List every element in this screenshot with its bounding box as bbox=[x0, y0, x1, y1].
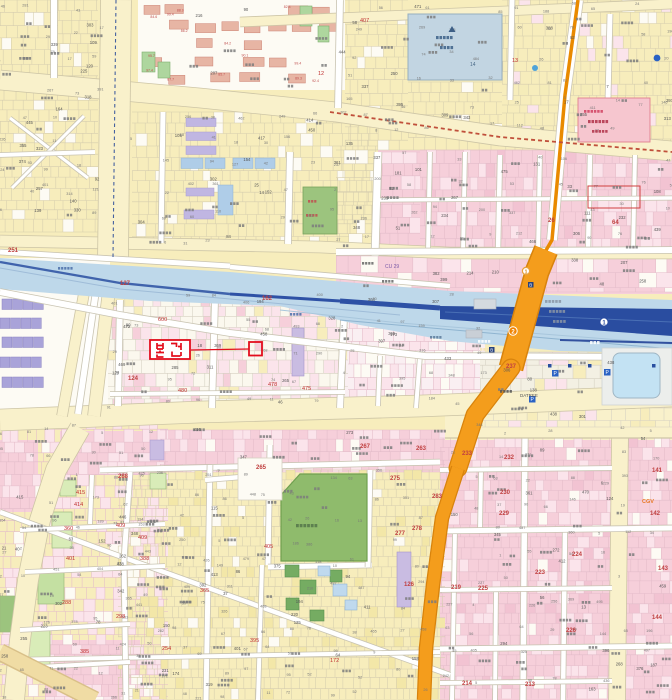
svg-text:86: 86 bbox=[223, 497, 227, 501]
svg-text:233: 233 bbox=[462, 451, 473, 457]
svg-text:81: 81 bbox=[548, 81, 552, 85]
svg-text:462: 462 bbox=[514, 81, 520, 85]
svg-text:38: 38 bbox=[352, 630, 356, 634]
svg-text:89: 89 bbox=[225, 671, 229, 675]
svg-text:92: 92 bbox=[389, 186, 394, 191]
svg-text:49: 49 bbox=[247, 397, 251, 401]
svg-text:323: 323 bbox=[36, 146, 44, 151]
svg-text:13: 13 bbox=[512, 58, 518, 64]
svg-text:369: 369 bbox=[568, 597, 574, 601]
svg-text:265: 265 bbox=[282, 378, 290, 383]
svg-text:22: 22 bbox=[74, 666, 78, 670]
svg-text:237: 237 bbox=[334, 163, 340, 167]
svg-text:27: 27 bbox=[336, 238, 340, 242]
svg-text:86: 86 bbox=[236, 569, 241, 574]
svg-text:187: 187 bbox=[650, 663, 658, 668]
svg-text:86.2: 86.2 bbox=[181, 29, 188, 33]
svg-text:69: 69 bbox=[197, 652, 201, 656]
svg-text:392: 392 bbox=[199, 583, 207, 588]
svg-text:172: 172 bbox=[330, 658, 339, 664]
svg-text:34: 34 bbox=[650, 531, 654, 535]
svg-text:24: 24 bbox=[115, 371, 119, 375]
svg-text:73: 73 bbox=[470, 105, 474, 109]
svg-text:69: 69 bbox=[162, 217, 166, 221]
svg-text:200: 200 bbox=[479, 208, 485, 212]
svg-text:83: 83 bbox=[622, 450, 626, 454]
svg-text:361: 361 bbox=[526, 491, 534, 496]
svg-text:154: 154 bbox=[243, 157, 251, 162]
svg-text:256: 256 bbox=[551, 600, 557, 604]
svg-text:282: 282 bbox=[158, 629, 164, 633]
svg-text:399: 399 bbox=[440, 277, 448, 282]
svg-text:41: 41 bbox=[377, 319, 381, 323]
svg-text:4: 4 bbox=[343, 371, 345, 375]
svg-text:92: 92 bbox=[117, 562, 121, 566]
svg-text:30: 30 bbox=[264, 141, 268, 145]
svg-text:303: 303 bbox=[87, 23, 95, 28]
svg-text:414: 414 bbox=[306, 118, 314, 123]
svg-text:95.7: 95.7 bbox=[148, 54, 155, 58]
svg-text:207: 207 bbox=[621, 260, 629, 265]
svg-text:404: 404 bbox=[97, 567, 103, 571]
svg-text:3: 3 bbox=[564, 96, 566, 100]
svg-text:50: 50 bbox=[147, 642, 151, 646]
svg-text:262: 262 bbox=[119, 554, 127, 559]
svg-text:98: 98 bbox=[220, 695, 224, 699]
svg-text:459: 459 bbox=[659, 584, 667, 589]
svg-text:347: 347 bbox=[240, 455, 248, 460]
svg-text:29: 29 bbox=[113, 350, 117, 354]
svg-text:49: 49 bbox=[477, 351, 481, 355]
svg-text:360: 360 bbox=[64, 526, 73, 532]
svg-text:451: 451 bbox=[53, 568, 59, 572]
svg-text:12: 12 bbox=[149, 430, 153, 434]
svg-text:96: 96 bbox=[52, 518, 56, 522]
svg-text:37: 37 bbox=[183, 646, 187, 650]
svg-text:302: 302 bbox=[210, 176, 218, 181]
svg-text:93: 93 bbox=[28, 161, 32, 165]
svg-text:21: 21 bbox=[451, 451, 455, 455]
svg-text:14: 14 bbox=[44, 427, 48, 431]
svg-text:445: 445 bbox=[26, 120, 34, 125]
svg-text:16: 16 bbox=[417, 76, 421, 80]
svg-text:50: 50 bbox=[504, 576, 508, 580]
svg-text:80: 80 bbox=[166, 399, 170, 403]
svg-text:59: 59 bbox=[186, 294, 190, 298]
svg-text:330: 330 bbox=[74, 208, 82, 213]
svg-text:47: 47 bbox=[262, 557, 266, 561]
svg-text:87: 87 bbox=[419, 516, 423, 520]
svg-text:11: 11 bbox=[267, 691, 271, 695]
svg-text:95: 95 bbox=[287, 673, 291, 677]
svg-text:401: 401 bbox=[234, 646, 242, 651]
svg-text:263: 263 bbox=[416, 446, 427, 452]
svg-text:318: 318 bbox=[85, 95, 93, 100]
svg-text:251: 251 bbox=[8, 248, 19, 254]
svg-text:153: 153 bbox=[138, 522, 144, 526]
svg-text:139: 139 bbox=[34, 208, 42, 213]
svg-text:196: 196 bbox=[646, 629, 652, 633]
svg-text:393: 393 bbox=[622, 474, 628, 478]
svg-text:4: 4 bbox=[472, 603, 474, 607]
svg-text:293: 293 bbox=[307, 214, 313, 218]
svg-text:425: 425 bbox=[139, 472, 145, 476]
svg-text:88: 88 bbox=[44, 687, 48, 691]
svg-text:134: 134 bbox=[331, 476, 337, 480]
svg-text:288: 288 bbox=[118, 474, 129, 480]
svg-text:306: 306 bbox=[573, 231, 581, 236]
svg-text:26: 26 bbox=[305, 516, 309, 520]
svg-text:354: 354 bbox=[0, 519, 6, 523]
svg-text:DATREE: DATREE bbox=[520, 393, 538, 398]
svg-text:112: 112 bbox=[517, 124, 523, 128]
svg-text:385: 385 bbox=[80, 649, 89, 655]
svg-text:B: B bbox=[529, 283, 532, 288]
svg-text:10: 10 bbox=[666, 207, 670, 211]
svg-text:89: 89 bbox=[92, 211, 96, 215]
svg-text:273: 273 bbox=[346, 430, 354, 435]
svg-text:600: 600 bbox=[158, 317, 167, 323]
svg-text:46: 46 bbox=[0, 432, 2, 436]
svg-text:135: 135 bbox=[346, 141, 354, 146]
svg-text:59: 59 bbox=[92, 54, 96, 58]
svg-text:450: 450 bbox=[308, 128, 316, 133]
svg-text:269: 269 bbox=[419, 25, 425, 29]
svg-text:5: 5 bbox=[650, 429, 652, 433]
svg-text:21: 21 bbox=[460, 236, 464, 240]
svg-text:397: 397 bbox=[378, 339, 386, 344]
svg-text:213: 213 bbox=[525, 682, 536, 688]
svg-text:275: 275 bbox=[390, 476, 401, 482]
svg-text:87: 87 bbox=[364, 113, 368, 117]
svg-text:45: 45 bbox=[452, 649, 456, 653]
svg-text:35: 35 bbox=[136, 654, 140, 658]
svg-text:12: 12 bbox=[99, 671, 103, 675]
svg-text:475: 475 bbox=[501, 169, 509, 174]
svg-text:182: 182 bbox=[0, 668, 2, 672]
svg-text:54: 54 bbox=[22, 526, 26, 530]
svg-text:487: 487 bbox=[358, 586, 364, 590]
svg-text:158: 158 bbox=[412, 656, 420, 661]
svg-text:5: 5 bbox=[476, 475, 478, 479]
svg-text:77: 77 bbox=[638, 103, 642, 107]
svg-text:414: 414 bbox=[74, 502, 83, 508]
svg-text:80: 80 bbox=[396, 668, 400, 672]
svg-text:5: 5 bbox=[101, 431, 103, 435]
svg-text:26: 26 bbox=[423, 688, 427, 692]
svg-text:97: 97 bbox=[244, 667, 248, 671]
svg-text:438: 438 bbox=[550, 412, 558, 417]
svg-text:298: 298 bbox=[116, 614, 125, 620]
svg-text:189: 189 bbox=[97, 520, 103, 524]
svg-text:219: 219 bbox=[451, 585, 462, 591]
svg-text:56: 56 bbox=[469, 632, 473, 636]
svg-text:52: 52 bbox=[358, 675, 362, 679]
svg-text:402: 402 bbox=[188, 182, 194, 186]
svg-text:214: 214 bbox=[467, 271, 475, 276]
svg-text:311: 311 bbox=[227, 585, 233, 589]
svg-text:97.4: 97.4 bbox=[146, 68, 153, 72]
svg-text:112: 112 bbox=[625, 530, 631, 534]
svg-text:307: 307 bbox=[432, 299, 440, 304]
svg-text:109: 109 bbox=[90, 40, 98, 45]
svg-text:67: 67 bbox=[221, 632, 225, 636]
svg-text:66: 66 bbox=[261, 630, 265, 634]
svg-text:13: 13 bbox=[358, 519, 362, 523]
svg-text:272: 272 bbox=[553, 548, 561, 553]
svg-text:2: 2 bbox=[504, 432, 506, 436]
svg-text:487: 487 bbox=[519, 526, 525, 530]
svg-text:173: 173 bbox=[480, 371, 486, 375]
svg-text:91: 91 bbox=[107, 405, 111, 409]
svg-text:86: 86 bbox=[375, 497, 379, 501]
svg-text:55: 55 bbox=[527, 549, 531, 553]
svg-text:63: 63 bbox=[493, 476, 497, 480]
svg-text:28: 28 bbox=[450, 292, 454, 296]
svg-text:386: 386 bbox=[306, 542, 312, 546]
svg-text:484: 484 bbox=[473, 57, 479, 61]
svg-text:49: 49 bbox=[610, 126, 614, 130]
svg-text:31: 31 bbox=[183, 241, 187, 245]
svg-text:224: 224 bbox=[572, 552, 583, 558]
svg-text:319: 319 bbox=[206, 682, 214, 687]
svg-text:98: 98 bbox=[172, 626, 176, 630]
svg-text:10: 10 bbox=[21, 574, 25, 578]
svg-text:146: 146 bbox=[661, 101, 667, 105]
svg-text:141: 141 bbox=[652, 468, 663, 474]
svg-text:405: 405 bbox=[471, 648, 477, 652]
svg-text:32: 32 bbox=[459, 179, 463, 183]
svg-text:250: 250 bbox=[391, 71, 399, 76]
svg-text:2: 2 bbox=[341, 324, 343, 328]
svg-text:35: 35 bbox=[70, 546, 74, 550]
svg-text:391: 391 bbox=[97, 88, 103, 92]
svg-text:325: 325 bbox=[521, 650, 527, 654]
svg-text:78: 78 bbox=[30, 454, 34, 458]
svg-text:406: 406 bbox=[243, 300, 249, 304]
svg-text:126: 126 bbox=[44, 621, 50, 625]
svg-text:32: 32 bbox=[476, 326, 480, 330]
svg-text:42: 42 bbox=[288, 518, 292, 522]
svg-text:138: 138 bbox=[530, 388, 538, 393]
svg-text:106: 106 bbox=[561, 157, 567, 161]
svg-text:72: 72 bbox=[191, 371, 195, 375]
svg-text:52: 52 bbox=[0, 574, 2, 578]
svg-text:446: 446 bbox=[119, 514, 127, 519]
svg-text:87.7: 87.7 bbox=[167, 77, 174, 81]
svg-text:21: 21 bbox=[2, 545, 7, 550]
svg-text:14: 14 bbox=[470, 62, 476, 68]
svg-text:125: 125 bbox=[294, 620, 302, 625]
svg-text:46: 46 bbox=[278, 400, 283, 405]
svg-text:262: 262 bbox=[411, 211, 417, 215]
svg-text:56: 56 bbox=[379, 6, 383, 10]
svg-text:365: 365 bbox=[126, 597, 132, 601]
svg-text:448: 448 bbox=[250, 493, 256, 497]
svg-text:348: 348 bbox=[448, 373, 454, 377]
svg-text:343: 343 bbox=[463, 115, 471, 120]
svg-text:471: 471 bbox=[414, 4, 422, 9]
svg-text:89: 89 bbox=[540, 447, 545, 452]
svg-text:173: 173 bbox=[93, 495, 99, 499]
svg-text:65: 65 bbox=[20, 668, 24, 672]
svg-text:237: 237 bbox=[506, 364, 517, 370]
svg-text:127: 127 bbox=[232, 162, 238, 166]
svg-text:55: 55 bbox=[246, 318, 250, 322]
svg-text:493: 493 bbox=[293, 324, 299, 328]
svg-text:327: 327 bbox=[0, 593, 3, 597]
svg-text:42: 42 bbox=[620, 426, 624, 430]
svg-text:254: 254 bbox=[162, 646, 171, 652]
svg-text:225: 225 bbox=[478, 586, 489, 592]
svg-text:94: 94 bbox=[346, 574, 351, 579]
svg-text:411: 411 bbox=[590, 106, 596, 110]
svg-text:171: 171 bbox=[162, 675, 168, 679]
svg-text:376: 376 bbox=[636, 666, 644, 671]
svg-text:5: 5 bbox=[218, 539, 220, 543]
svg-text:395: 395 bbox=[250, 638, 259, 644]
svg-text:226: 226 bbox=[566, 628, 577, 634]
svg-text:149: 149 bbox=[217, 563, 223, 567]
svg-text:417: 417 bbox=[258, 135, 266, 140]
svg-text:365: 365 bbox=[388, 331, 396, 336]
svg-text:249: 249 bbox=[279, 115, 285, 119]
svg-text:99: 99 bbox=[334, 649, 338, 653]
svg-text:409: 409 bbox=[116, 523, 125, 529]
svg-text:67: 67 bbox=[292, 380, 296, 384]
svg-text:40: 40 bbox=[538, 155, 542, 159]
svg-text:294: 294 bbox=[418, 580, 424, 584]
svg-text:69: 69 bbox=[73, 642, 77, 646]
svg-text:64: 64 bbox=[336, 653, 341, 658]
svg-text:89.3: 89.3 bbox=[295, 77, 302, 81]
svg-text:33: 33 bbox=[567, 184, 572, 189]
svg-text:225: 225 bbox=[80, 68, 88, 73]
svg-text:355: 355 bbox=[20, 143, 28, 148]
svg-text:234: 234 bbox=[441, 213, 449, 218]
svg-text:395: 395 bbox=[399, 377, 405, 381]
svg-text:415: 415 bbox=[16, 495, 24, 500]
svg-text:63: 63 bbox=[445, 626, 449, 630]
svg-text:374: 374 bbox=[19, 159, 27, 164]
svg-text:121: 121 bbox=[93, 188, 99, 192]
svg-text:388: 388 bbox=[140, 556, 149, 562]
svg-text:12: 12 bbox=[394, 128, 398, 132]
svg-text:314: 314 bbox=[66, 192, 72, 196]
svg-text:497: 497 bbox=[644, 648, 650, 652]
svg-text:38: 38 bbox=[211, 116, 215, 120]
svg-text:19: 19 bbox=[621, 504, 625, 508]
svg-text:267: 267 bbox=[47, 89, 53, 93]
svg-text:351: 351 bbox=[403, 496, 409, 500]
svg-text:288: 288 bbox=[62, 600, 71, 606]
svg-text:61: 61 bbox=[350, 558, 354, 562]
svg-text:27: 27 bbox=[400, 628, 404, 632]
svg-text:236: 236 bbox=[157, 471, 163, 475]
svg-text:77: 77 bbox=[594, 185, 598, 189]
svg-text:43: 43 bbox=[590, 208, 594, 212]
svg-text:281: 281 bbox=[22, 4, 28, 8]
svg-text:66: 66 bbox=[544, 505, 548, 509]
svg-text:50: 50 bbox=[141, 447, 145, 451]
svg-text:11: 11 bbox=[52, 139, 56, 143]
svg-text:63: 63 bbox=[69, 537, 74, 542]
svg-text:396: 396 bbox=[602, 648, 610, 653]
svg-text:152: 152 bbox=[99, 539, 107, 544]
svg-text:258: 258 bbox=[639, 279, 647, 284]
svg-text:26: 26 bbox=[539, 57, 543, 61]
svg-text:14: 14 bbox=[499, 455, 503, 459]
svg-text:84: 84 bbox=[401, 607, 405, 611]
svg-text:63: 63 bbox=[348, 476, 352, 480]
svg-text:344: 344 bbox=[476, 423, 482, 427]
svg-text:87: 87 bbox=[72, 424, 76, 428]
svg-text:210: 210 bbox=[492, 269, 500, 274]
svg-text:29: 29 bbox=[281, 216, 285, 220]
svg-text:22: 22 bbox=[526, 479, 530, 483]
svg-text:30: 30 bbox=[620, 202, 624, 206]
svg-text:200: 200 bbox=[374, 177, 380, 181]
svg-text:214: 214 bbox=[462, 681, 473, 687]
svg-text:170: 170 bbox=[653, 456, 659, 460]
svg-text:324: 324 bbox=[0, 168, 4, 172]
svg-text:86: 86 bbox=[195, 493, 199, 497]
svg-text:194: 194 bbox=[137, 517, 143, 521]
svg-text:18: 18 bbox=[180, 133, 184, 137]
svg-text:65: 65 bbox=[624, 629, 628, 633]
svg-text:78: 78 bbox=[552, 676, 556, 680]
svg-text:68: 68 bbox=[429, 371, 433, 375]
svg-text:401: 401 bbox=[111, 301, 117, 305]
svg-text:23: 23 bbox=[311, 160, 315, 164]
svg-text:146: 146 bbox=[569, 498, 575, 502]
svg-text:441: 441 bbox=[136, 603, 142, 607]
svg-text:378: 378 bbox=[71, 620, 77, 624]
svg-text:316: 316 bbox=[419, 349, 425, 353]
svg-text:152: 152 bbox=[265, 190, 273, 195]
svg-text:96: 96 bbox=[107, 544, 111, 548]
svg-text:80: 80 bbox=[527, 376, 532, 381]
svg-text:5: 5 bbox=[130, 137, 132, 141]
svg-text:76: 76 bbox=[642, 180, 646, 184]
svg-text:23: 23 bbox=[205, 238, 209, 242]
svg-text:326: 326 bbox=[221, 610, 227, 614]
svg-text:162: 162 bbox=[262, 296, 273, 302]
svg-text:25: 25 bbox=[350, 349, 354, 353]
svg-text:375: 375 bbox=[274, 564, 282, 569]
svg-text:439: 439 bbox=[654, 227, 662, 232]
svg-text:1: 1 bbox=[525, 270, 528, 276]
svg-text:144: 144 bbox=[600, 632, 606, 636]
svg-text:95: 95 bbox=[0, 447, 3, 451]
svg-text:21: 21 bbox=[135, 688, 139, 692]
svg-text:B: B bbox=[490, 348, 493, 353]
svg-text:465: 465 bbox=[370, 630, 376, 634]
svg-text:301: 301 bbox=[579, 414, 587, 419]
svg-text:17: 17 bbox=[365, 235, 369, 239]
svg-text:79: 79 bbox=[51, 50, 55, 54]
svg-text:47: 47 bbox=[666, 159, 670, 163]
svg-text:258: 258 bbox=[1, 653, 9, 658]
svg-text:12: 12 bbox=[318, 71, 324, 77]
svg-text:126: 126 bbox=[404, 582, 415, 588]
svg-text:1: 1 bbox=[499, 554, 501, 558]
svg-text:302: 302 bbox=[340, 111, 346, 115]
svg-text:92: 92 bbox=[95, 176, 100, 181]
svg-text:256: 256 bbox=[185, 115, 191, 119]
svg-text:26: 26 bbox=[196, 354, 200, 358]
svg-text:CU 29: CU 29 bbox=[385, 264, 399, 270]
